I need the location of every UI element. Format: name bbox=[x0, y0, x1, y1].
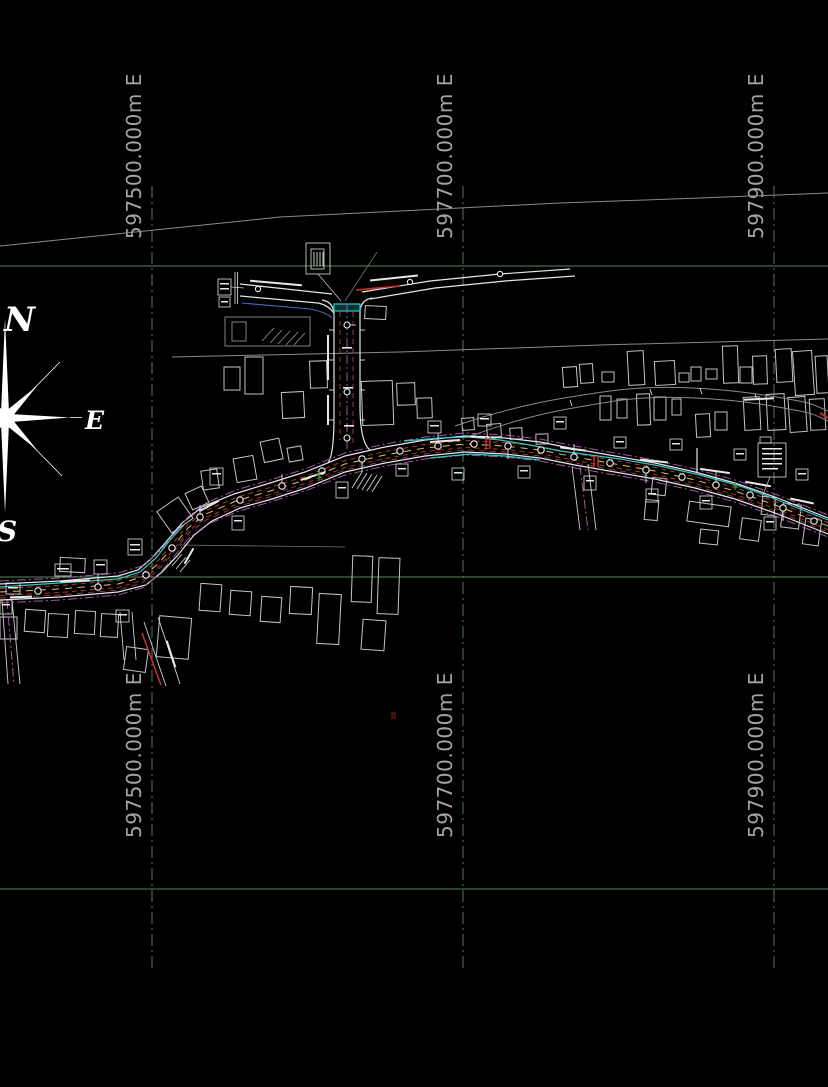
compass-south-label: S bbox=[0, 515, 17, 548]
branch-edge bbox=[132, 612, 136, 660]
building bbox=[722, 346, 738, 384]
building bbox=[740, 518, 762, 541]
building bbox=[351, 556, 373, 603]
top-road bbox=[235, 269, 575, 318]
easting-label-top-3: 597900.000m E bbox=[744, 73, 768, 239]
micro-labels bbox=[10, 436, 814, 668]
building bbox=[627, 351, 645, 386]
building bbox=[654, 360, 675, 385]
survey-plan-canvas[interactable]: 597500.000m E 597700.000m E 597900.000m … bbox=[0, 0, 828, 1087]
building bbox=[602, 372, 614, 382]
building bbox=[792, 350, 814, 395]
north-arrow-compass: N E S bbox=[0, 300, 105, 548]
building bbox=[699, 529, 718, 545]
boundary-segment bbox=[178, 545, 345, 547]
chainage-mark bbox=[342, 347, 352, 349]
building bbox=[672, 399, 681, 415]
building bbox=[47, 613, 68, 637]
building bbox=[715, 412, 727, 430]
branch-edge bbox=[588, 464, 596, 530]
lane-edge-upper bbox=[455, 387, 828, 426]
branch-roads bbox=[2, 448, 697, 686]
branch-edge bbox=[120, 612, 124, 660]
building bbox=[679, 373, 689, 382]
branch-edge bbox=[572, 466, 580, 530]
road-edge bbox=[370, 276, 575, 299]
road-edge bbox=[362, 269, 570, 292]
building bbox=[617, 399, 627, 418]
coordinate-grid: 597500.000m E 597700.000m E 597900.000m … bbox=[0, 73, 828, 968]
building bbox=[815, 356, 828, 394]
compass-ray-ne bbox=[5, 362, 60, 418]
compass-east-label: E bbox=[84, 406, 105, 435]
easting-label-bottom-3: 597900.000m E bbox=[744, 672, 768, 838]
compass-ray-se bbox=[5, 418, 62, 476]
branch-edge bbox=[2, 600, 8, 684]
special-marks bbox=[172, 413, 828, 719]
callout bbox=[218, 279, 244, 307]
boundary-leader bbox=[345, 252, 377, 301]
building bbox=[310, 361, 328, 389]
building bbox=[397, 383, 416, 406]
building bbox=[260, 438, 283, 462]
building bbox=[361, 380, 394, 425]
compass-north-label: N bbox=[3, 300, 37, 340]
building bbox=[775, 349, 793, 383]
building bbox=[562, 367, 577, 388]
building bbox=[287, 446, 303, 462]
building-hatched bbox=[687, 501, 731, 527]
building bbox=[462, 418, 475, 431]
building bbox=[260, 596, 282, 622]
chainage-mark bbox=[344, 425, 354, 427]
survey-plan-viewport[interactable]: 597500.000m E 597700.000m E 597900.000m … bbox=[0, 0, 828, 1087]
utility-blue-line bbox=[242, 303, 332, 318]
chainage-mark bbox=[343, 387, 353, 389]
callout-boxes bbox=[0, 243, 808, 622]
building bbox=[740, 367, 752, 383]
building bbox=[199, 583, 222, 611]
building bbox=[281, 391, 304, 418]
building bbox=[233, 455, 257, 482]
road-micro-label-vertical bbox=[327, 395, 329, 425]
road-micro-label-vertical bbox=[327, 335, 329, 380]
narrow-lane bbox=[455, 387, 828, 437]
building bbox=[644, 500, 659, 521]
building bbox=[753, 356, 768, 384]
building bbox=[377, 558, 400, 615]
callout bbox=[758, 437, 786, 497]
utility-red-line bbox=[0, 441, 828, 589]
road-edge bbox=[240, 284, 332, 294]
road-centerline-yellow bbox=[0, 444, 828, 592]
compound-hatch-marks bbox=[262, 328, 305, 345]
building bbox=[245, 357, 263, 394]
building bbox=[74, 610, 95, 634]
building bbox=[289, 586, 312, 614]
building bbox=[691, 367, 701, 381]
utility-brown-line bbox=[0, 450, 828, 598]
easting-label-top-2: 597700.000m E bbox=[433, 73, 457, 239]
road-edge bbox=[360, 298, 372, 450]
easting-label-top-1: 597500.000m E bbox=[122, 73, 146, 239]
building bbox=[706, 369, 717, 379]
red-edge-mark bbox=[820, 413, 828, 418]
building bbox=[60, 557, 86, 572]
utility-magenta-line bbox=[0, 433, 828, 581]
building bbox=[654, 397, 666, 420]
culvert-bars-curve bbox=[172, 554, 190, 572]
building bbox=[232, 322, 246, 341]
culvert-bars-junction bbox=[352, 472, 382, 492]
building bbox=[229, 590, 252, 615]
building-hatched bbox=[156, 616, 191, 660]
road-edge bbox=[322, 300, 334, 463]
easting-label-bottom-1: 597500.000m E bbox=[122, 672, 146, 838]
buildings-layer bbox=[0, 305, 828, 672]
building bbox=[361, 619, 386, 651]
faint-red-mark bbox=[391, 712, 396, 719]
building bbox=[224, 367, 240, 390]
road-micro-label bbox=[250, 280, 302, 287]
building bbox=[600, 396, 611, 420]
boundary-lines bbox=[0, 193, 828, 547]
building bbox=[510, 428, 523, 440]
easting-label-bottom-2: 597700.000m E bbox=[433, 672, 457, 838]
building bbox=[365, 305, 387, 319]
building bbox=[695, 414, 710, 438]
building bbox=[417, 398, 433, 419]
compass-star-icon bbox=[0, 318, 70, 513]
building bbox=[317, 593, 342, 644]
boundary-line-lower bbox=[172, 339, 828, 357]
building bbox=[579, 364, 593, 384]
building bbox=[24, 609, 45, 632]
